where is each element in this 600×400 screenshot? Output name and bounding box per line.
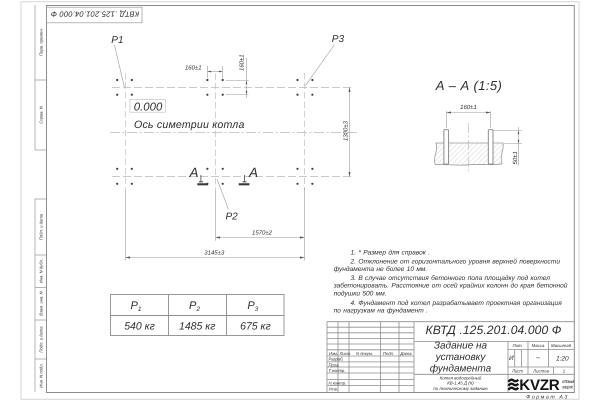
svg-text:КОТЕЛЬНЫЙ: КОТЕЛЬНЫЙ: [562, 379, 574, 384]
svg-text:0.000: 0.000: [134, 101, 163, 113]
svg-text:Инв. N подл.: Инв. N подл.: [39, 363, 44, 387]
svg-text:540 кг: 540 кг: [124, 321, 155, 333]
svg-text:4. Фундамент под котел раз: 4. Фундамент под котел разрабатывает про…: [351, 300, 563, 307]
svg-text:А: А: [248, 165, 258, 180]
svg-text:1570±2: 1570±2: [252, 230, 273, 237]
svg-text:И: И: [509, 355, 514, 362]
svg-text:А: А: [189, 165, 199, 180]
svg-text:KVZR: KVZR: [519, 377, 559, 394]
svg-text:160±1: 160±1: [460, 104, 477, 111]
svg-text:Масштаб: Масштаб: [551, 343, 572, 348]
svg-text:1. * Размер для справок .: 1. * Размер для справок .: [351, 249, 431, 256]
svg-text:фундамента не более 10 мм.: фундамента не более 10 мм.: [334, 266, 428, 273]
svg-text:160±1: 160±1: [239, 54, 246, 71]
svg-text:КВТД .125.201.04.000 Ф: КВТД .125.201.04.000 Ф: [51, 10, 139, 19]
svg-text:Р2: Р2: [226, 211, 239, 222]
svg-text:Задание на: Задание на: [434, 341, 488, 352]
svg-text:3145±3: 3145±3: [204, 249, 225, 256]
svg-text:675 кг: 675 кг: [240, 321, 271, 333]
svg-text:Формат А3: Формат А3: [526, 394, 569, 400]
svg-text:Ось симетрии котла: Ось симетрии котла: [134, 119, 245, 131]
svg-text:1:20: 1:20: [556, 356, 569, 363]
svg-text:Р3: Р3: [332, 34, 345, 45]
svg-text:Масса: Масса: [532, 343, 545, 348]
svg-text:по техническому заданию: по техническому заданию: [433, 386, 488, 391]
svg-text:Т.контр.: Т.контр.: [329, 368, 346, 373]
svg-text:ЗАВОД РЭП: ЗАВОД РЭП: [562, 385, 573, 389]
svg-text:Разраб.: Разраб.: [329, 357, 344, 362]
svg-text:по нагрузкам на фундамент .: по нагрузкам на фундамент .: [334, 307, 428, 314]
svg-text:Инв. N дубл.: Инв. N дубл.: [39, 259, 44, 283]
svg-text:Лист: Лист: [339, 351, 351, 356]
svg-text:50±1: 50±1: [512, 151, 519, 164]
svg-text:Лит.: Лит.: [512, 343, 523, 348]
svg-text:2. Отклонение от горизонтал: 2. Отклонение от горизонтального уровня …: [350, 258, 561, 265]
svg-text:–: –: [535, 355, 540, 362]
svg-text:Подп. и дата: Подп. и дата: [39, 326, 44, 353]
svg-text:Пров.: Пров.: [329, 362, 340, 367]
svg-text:1300±3: 1300±3: [343, 120, 350, 141]
svg-text:Подп. и дата: Подп. и дата: [39, 213, 44, 240]
svg-text:Справ. N: Справ. N: [39, 105, 44, 123]
svg-text:Подп.: Подп.: [383, 351, 394, 356]
svg-text:Н.контр.: Н.контр.: [329, 380, 347, 385]
svg-text:КВТД .125.201.04.000 Ф: КВТД .125.201.04.000 Ф: [426, 323, 562, 337]
svg-text:забетонировать. Расстояние о: забетонировать. Расстояние от осей крайн…: [333, 283, 568, 290]
svg-text:Изм.: Изм.: [329, 351, 338, 356]
svg-text:Листов: Листов: [532, 369, 549, 374]
svg-text:Лист: Лист: [511, 369, 523, 374]
svg-text:Р1: Р1: [111, 35, 123, 46]
svg-text:1485 кг: 1485 кг: [179, 321, 215, 333]
svg-text:А – А (1:5): А – А (1:5): [435, 78, 503, 93]
svg-text:Утв.: Утв.: [329, 386, 339, 391]
svg-text:160±1: 160±1: [185, 65, 202, 72]
svg-text:фундамента: фундамента: [430, 364, 492, 375]
svg-text:Перв. примен.: Перв. примен.: [39, 28, 44, 56]
svg-text:Взам. инв. N: Взам. инв. N: [39, 290, 44, 315]
svg-text:установку: установку: [435, 352, 487, 363]
svg-text:Дата: Дата: [400, 351, 413, 356]
svg-text:3. В случае отсутствия бето: 3. В случае отсутствия бетонного пола пл…: [351, 275, 551, 282]
svg-text:подушки 500 мм.: подушки 500 мм.: [334, 291, 387, 298]
svg-text:N докум.: N докум.: [356, 351, 373, 356]
